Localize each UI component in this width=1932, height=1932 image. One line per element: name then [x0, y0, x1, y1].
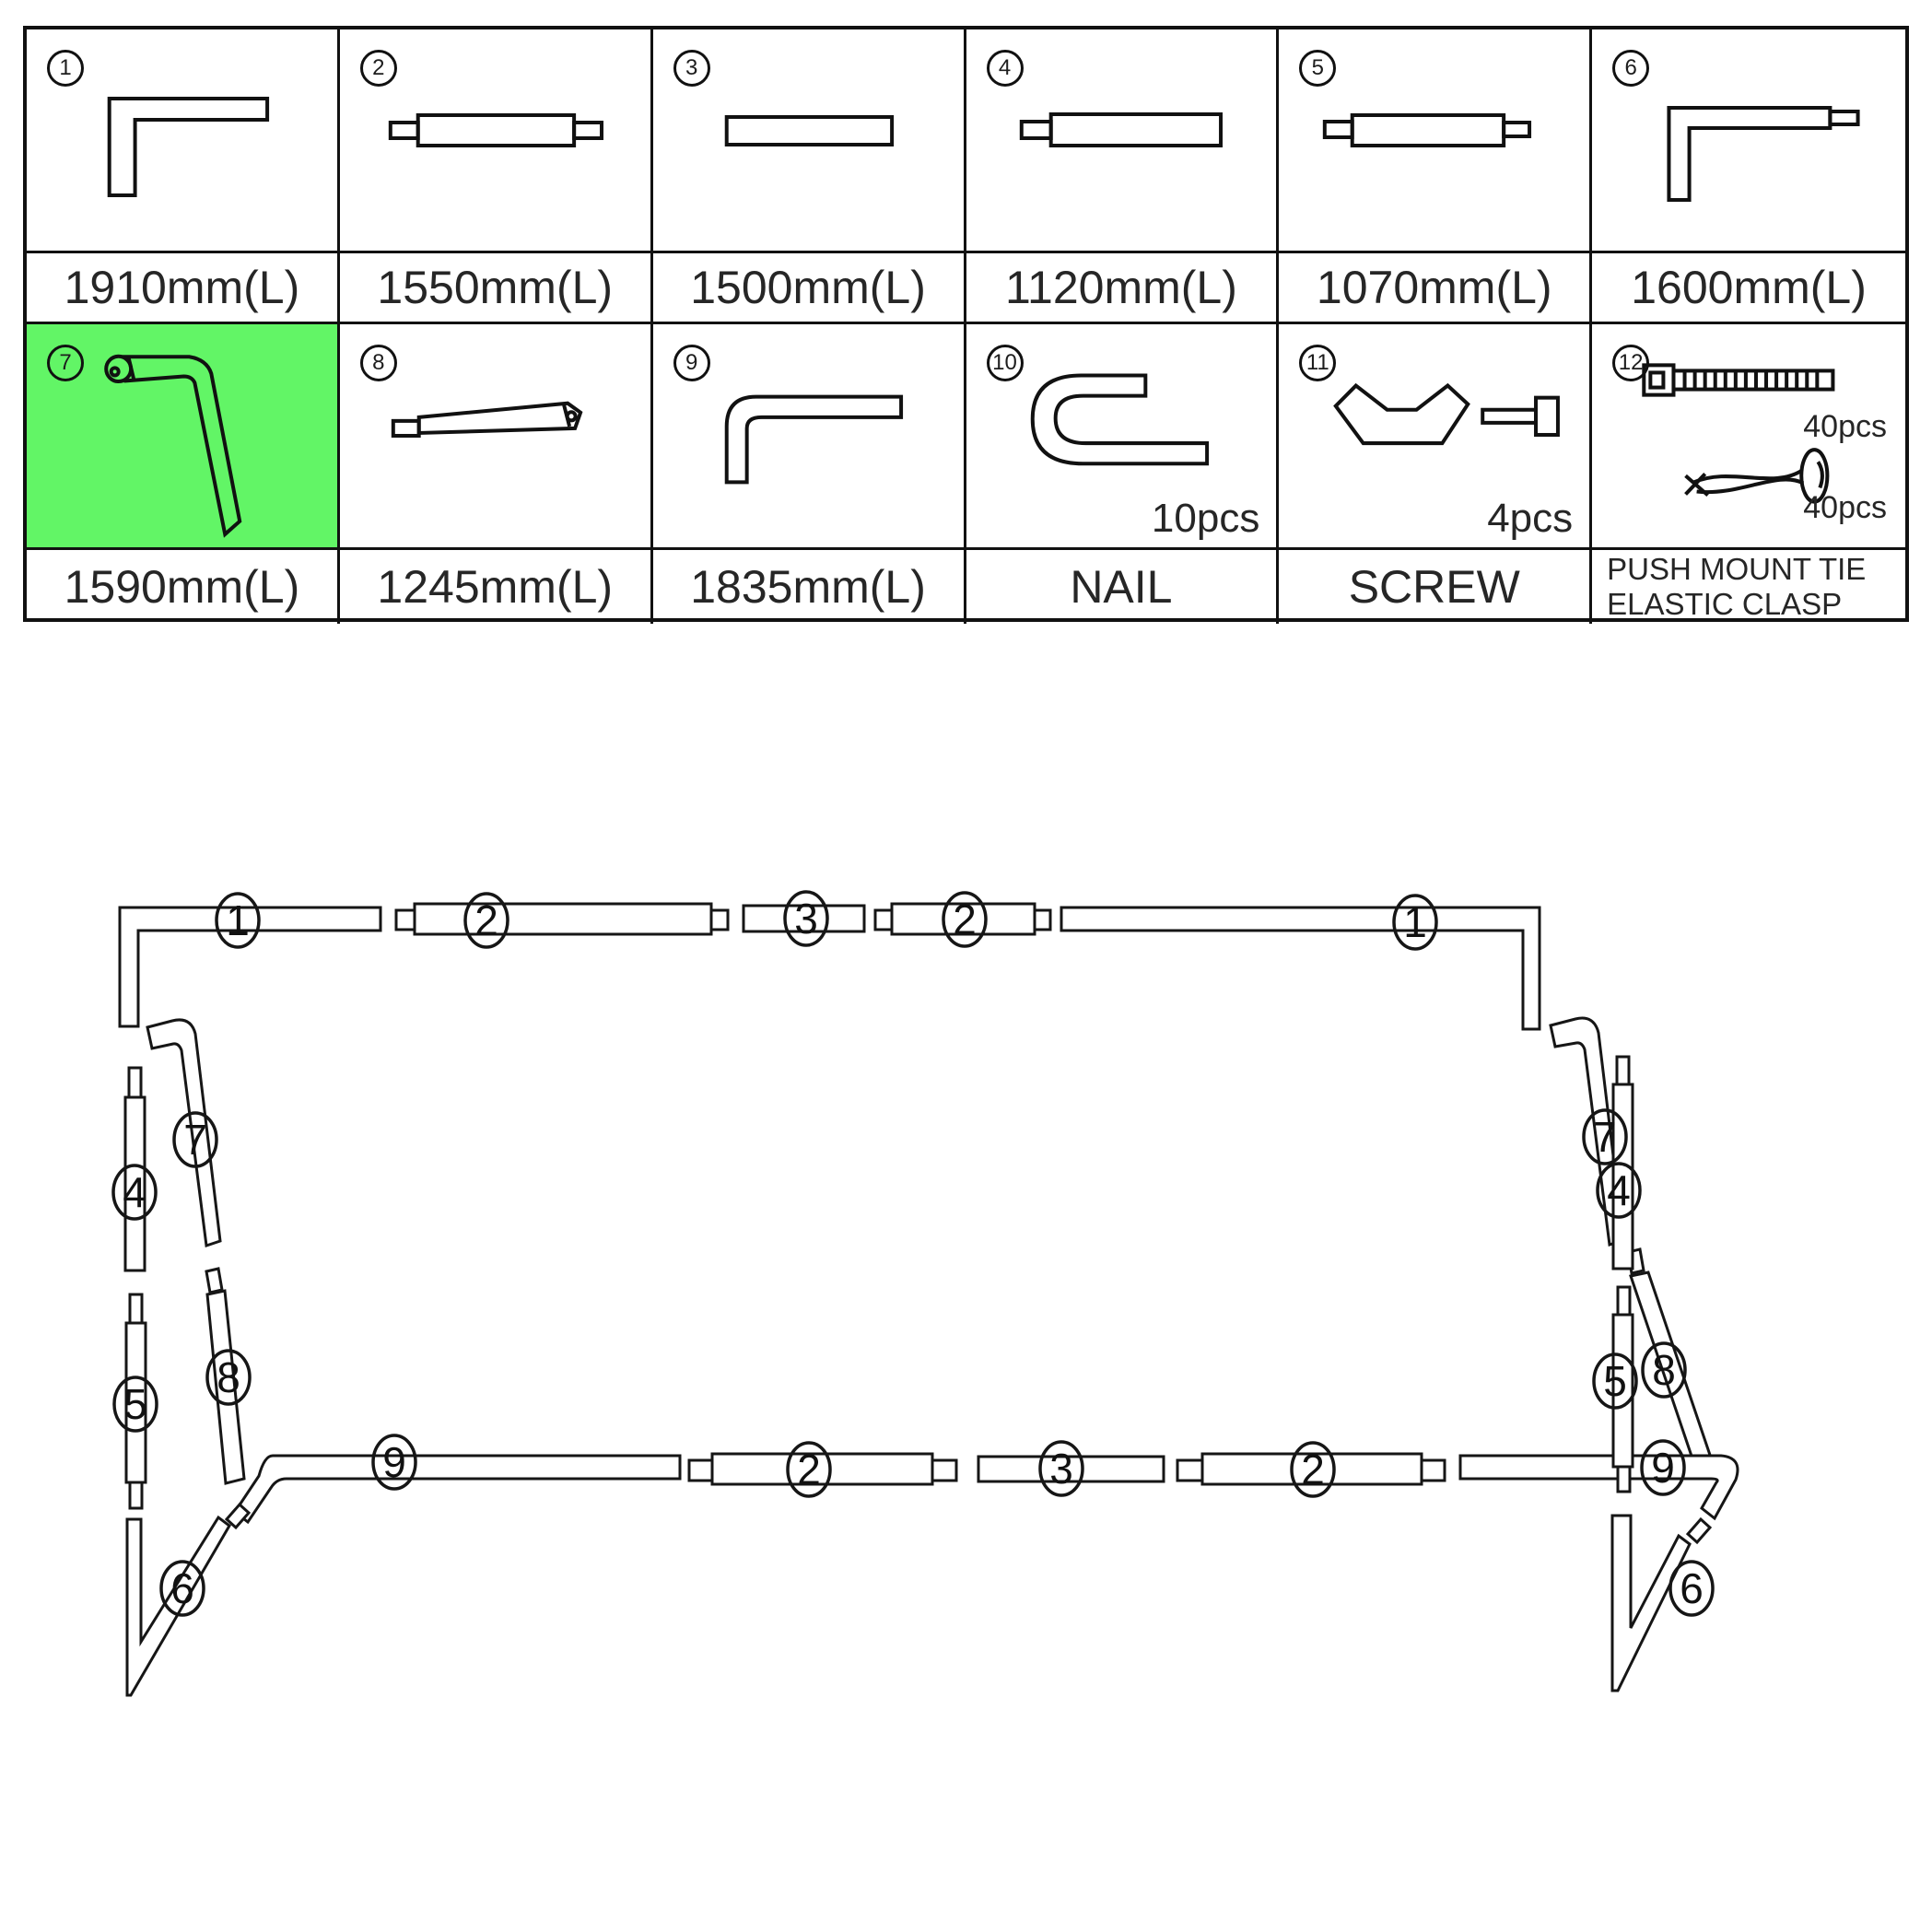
diagram-piece-5-right-tab	[1618, 1287, 1630, 1315]
svg-text:9: 9	[382, 1438, 406, 1486]
part-cell-10: 10 10pcs	[966, 324, 1280, 550]
length-text: 1120mm(L)	[1005, 261, 1237, 314]
part-name-text: NAIL	[1070, 560, 1172, 614]
length-text: 1600mm(L)	[1631, 261, 1867, 314]
length-text: 1550mm(L)	[377, 261, 613, 314]
svg-text:6: 6	[1680, 1564, 1704, 1612]
svg-text:1: 1	[1403, 898, 1427, 946]
part-number-badge: 10	[987, 345, 1024, 381]
clasp-quantity: 40pcs	[1803, 490, 1887, 526]
part-cell-8: 8	[340, 324, 653, 550]
svg-text:2: 2	[1301, 1446, 1325, 1493]
part-number-badge: 12	[1612, 345, 1649, 381]
svg-text:5: 5	[1603, 1357, 1627, 1405]
part-cell-3: 3	[653, 29, 966, 253]
diagram-piece-2c-tab	[689, 1460, 712, 1481]
diagram-piece-2c-body	[712, 1454, 932, 1484]
part-4-length: 1120mm(L)	[966, 253, 1280, 324]
length-text: 1835mm(L)	[690, 560, 926, 614]
part-cell-9: 9	[653, 324, 966, 550]
part-12-name: PUSH MOUNT TIE ELASTIC CLASP	[1592, 550, 1905, 624]
part-name-text: ELASTIC CLASP	[1607, 587, 1842, 622]
svg-text:5: 5	[123, 1380, 147, 1428]
svg-text:3: 3	[1049, 1445, 1073, 1493]
diagram-piece-2d-tab	[1177, 1460, 1202, 1481]
diagram-piece-6-left-tab	[227, 1505, 249, 1528]
diagram-piece-9-left	[235, 1456, 680, 1522]
svg-text:8: 8	[217, 1353, 240, 1401]
part-number-badge: 8	[360, 345, 397, 381]
part-number-badge: 6	[1612, 50, 1649, 87]
diagram-piece-1-right	[1061, 907, 1540, 1029]
parts-table: 1 2 3 4 5	[23, 26, 1909, 622]
part-6-length: 1600mm(L)	[1592, 253, 1905, 324]
diagram-piece-5-right-tab2	[1618, 1467, 1630, 1492]
part-name-text: PUSH MOUNT TIE	[1607, 552, 1866, 587]
part-cell-4: 4	[966, 29, 1280, 253]
svg-text:7: 7	[1593, 1113, 1617, 1161]
part-cell-12: 12 40pcs 40pcs	[1592, 324, 1905, 550]
callout-7-left: 7	[174, 1113, 217, 1166]
diagram-piece-2a-body	[415, 904, 711, 934]
svg-text:1: 1	[226, 896, 250, 944]
part-cell-2: 2	[340, 29, 653, 253]
callout-6-right: 6	[1670, 1562, 1713, 1615]
part-3-length: 1500mm(L)	[653, 253, 966, 324]
part-8-length: 1245mm(L)	[340, 550, 653, 624]
part-number-badge: 4	[987, 50, 1024, 87]
diagram-piece-2a-tab2	[711, 910, 728, 930]
length-text: 1245mm(L)	[377, 560, 613, 614]
part-cell-1: 1	[27, 29, 340, 253]
length-text: 1500mm(L)	[690, 261, 926, 314]
screw-quantity: 4pcs	[1487, 496, 1573, 542]
diagram-piece-2d-tab2	[1422, 1460, 1445, 1481]
length-text: 1910mm(L)	[64, 261, 300, 314]
diagram-piece-1-left	[120, 907, 381, 1026]
diagram-piece-6-right	[1612, 1516, 1690, 1691]
assembly-instruction-sheet: 1 2 3 4 5	[0, 0, 1932, 1932]
part-9-length: 1835mm(L)	[653, 550, 966, 624]
part-cell-7-highlighted: 7	[27, 324, 340, 550]
part-name-text: SCREW	[1349, 560, 1520, 614]
part-number-badge: 2	[360, 50, 397, 87]
nail-quantity: 10pcs	[1152, 496, 1259, 542]
part-number-badge: 1	[47, 50, 84, 87]
diagram-piece-2a-tab	[396, 910, 415, 930]
callout-5-left: 5	[114, 1377, 157, 1431]
callout-4-left: 4	[113, 1165, 156, 1219]
length-text: 1070mm(L)	[1317, 261, 1552, 314]
part-11-name: SCREW	[1279, 550, 1592, 624]
part-cell-11: 11 4pcs	[1279, 324, 1592, 550]
svg-text:8: 8	[1652, 1346, 1676, 1394]
diagram-piece-5-left-tab2	[130, 1482, 142, 1508]
svg-text:2: 2	[797, 1446, 821, 1493]
diagram-piece-9-right	[1460, 1456, 1738, 1518]
part-10-name: NAIL	[966, 550, 1280, 624]
diagram-piece-2b-tab2	[1035, 910, 1050, 930]
part-number-badge: 9	[673, 345, 710, 381]
part-number-badge: 3	[673, 50, 710, 87]
diagram-piece-6-right-tab	[1688, 1519, 1710, 1542]
part-number-badge: 7	[47, 345, 84, 381]
diagram-piece-4-left-tab	[129, 1068, 141, 1097]
part-cell-6: 6	[1592, 29, 1905, 253]
diagram-piece-4-right-tab	[1617, 1057, 1629, 1084]
part-cell-5: 5	[1279, 29, 1592, 253]
svg-text:4: 4	[1607, 1166, 1631, 1214]
svg-text:9: 9	[1651, 1444, 1675, 1492]
svg-text:7: 7	[183, 1116, 207, 1164]
tie-quantity: 40pcs	[1803, 409, 1887, 445]
part-5-length: 1070mm(L)	[1279, 253, 1592, 324]
diagram-piece-2b-tab	[875, 910, 892, 930]
svg-text:3: 3	[794, 895, 818, 943]
callout-8-left: 8	[207, 1351, 250, 1404]
part-2-length: 1550mm(L)	[340, 253, 653, 324]
svg-text:6: 6	[170, 1564, 194, 1612]
diagram-piece-8-left	[206, 1269, 222, 1293]
diagram-piece-2c-tab2	[932, 1460, 956, 1481]
diagram-piece-5-left-tab	[130, 1294, 142, 1323]
svg-text:2: 2	[474, 896, 498, 944]
callout-6-left: 6	[161, 1562, 204, 1615]
svg-text:2: 2	[953, 896, 977, 943]
part-1-length: 1910mm(L)	[27, 253, 340, 324]
svg-text:4: 4	[123, 1168, 146, 1216]
assembly-diagram: 1 2 3 2 1 7 4 5 8 6 9 2 3 2 7 4 5 8 9 6	[0, 826, 1932, 1932]
part-7-length: 1590mm(L)	[27, 550, 340, 624]
length-text: 1590mm(L)	[64, 560, 300, 614]
